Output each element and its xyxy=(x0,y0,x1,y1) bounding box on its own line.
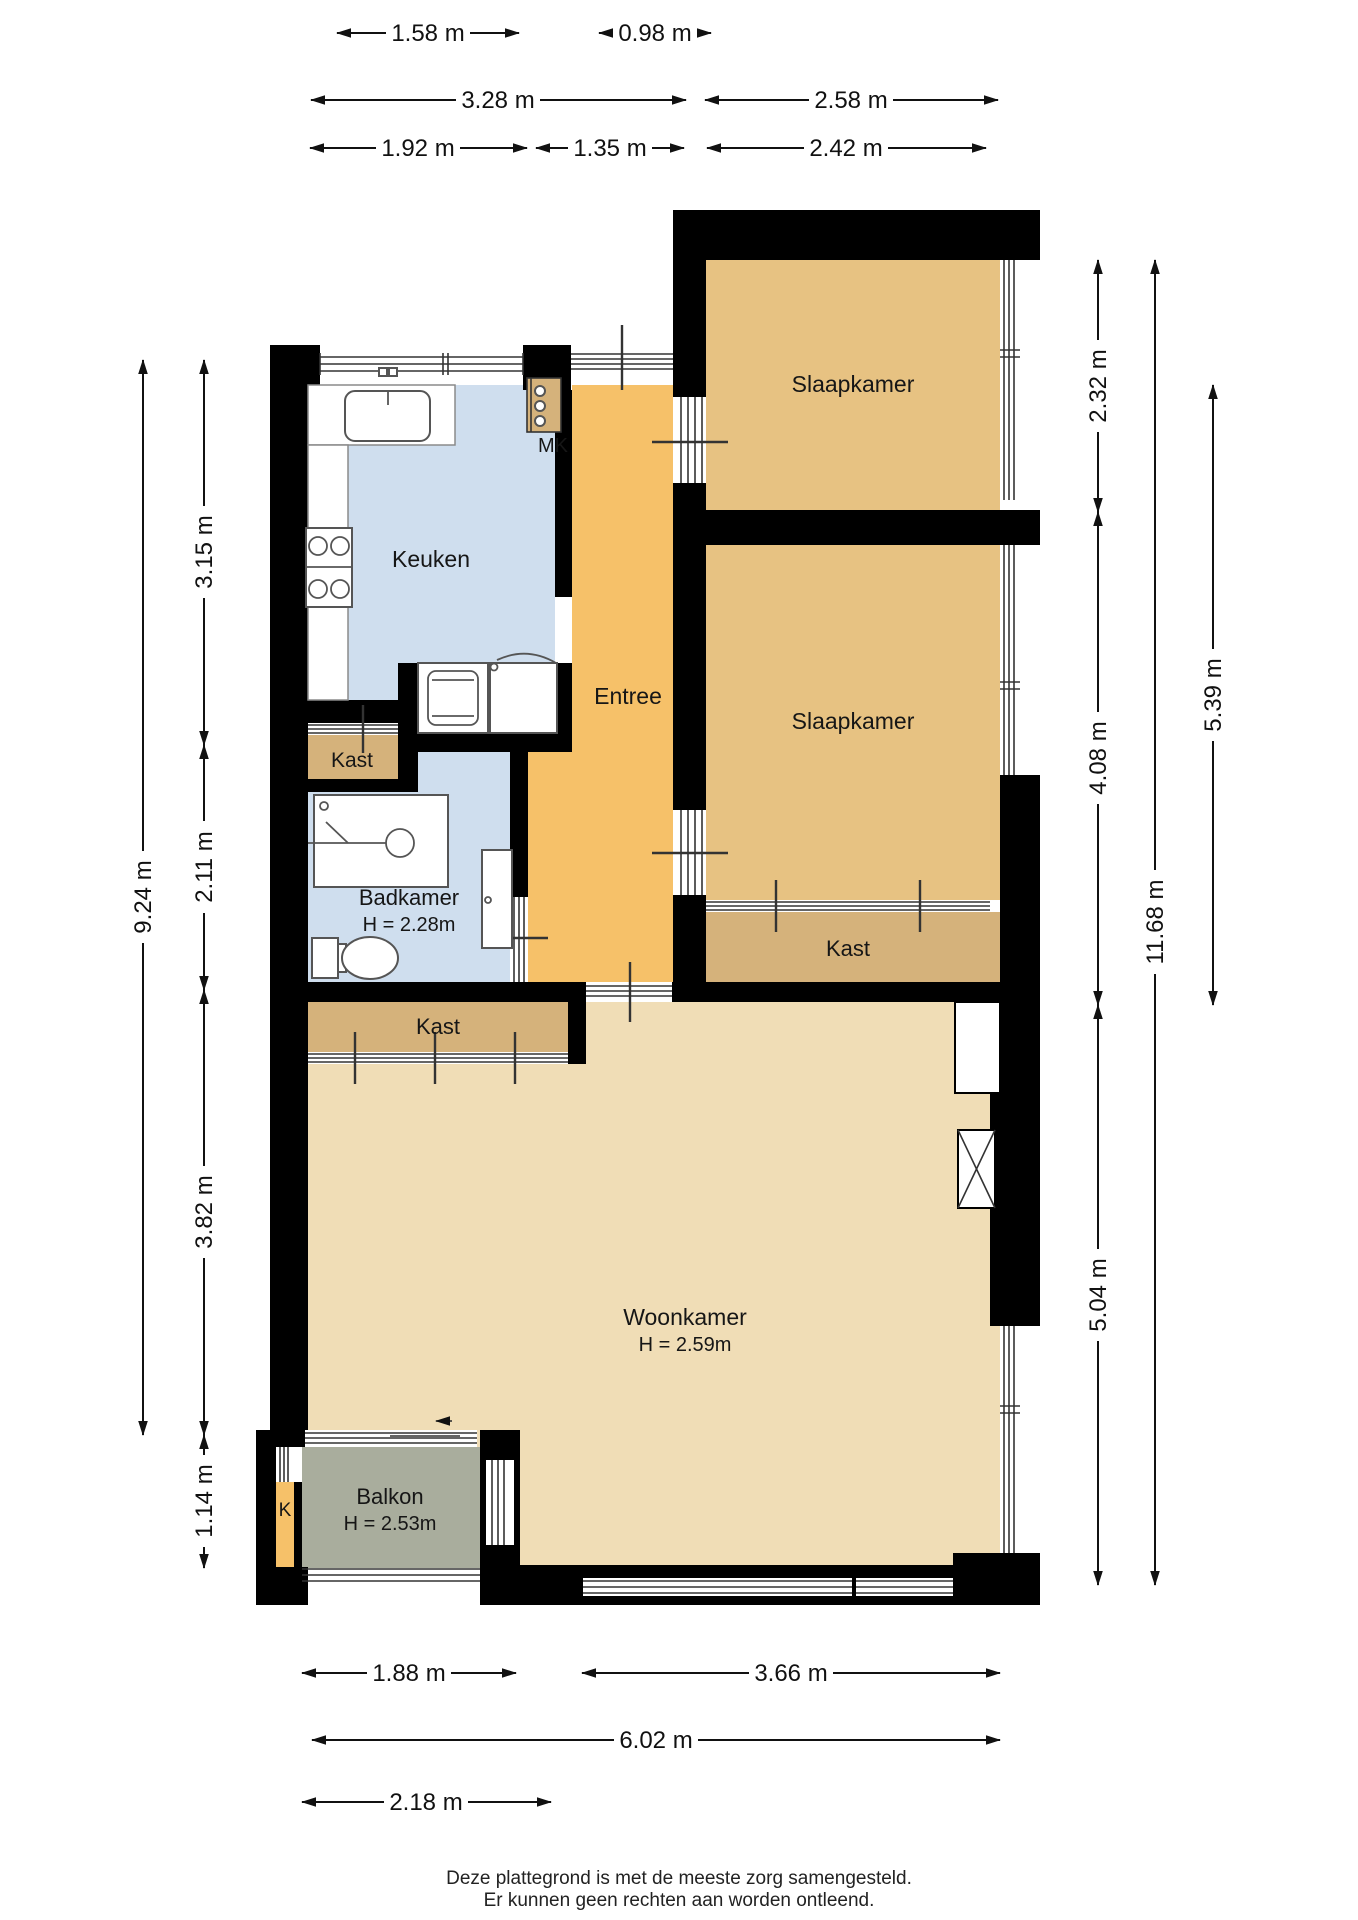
shower-icon xyxy=(308,795,448,887)
svg-text:2.58 m: 2.58 m xyxy=(814,87,887,114)
label-badkamer-height: H = 2.28m xyxy=(363,914,456,936)
window-woonkamer-bottom xyxy=(583,1578,953,1596)
label-keuken: Keuken xyxy=(392,546,470,572)
svg-text:3.28 m: 3.28 m xyxy=(461,87,534,114)
label-meterkast: MK xyxy=(538,435,569,457)
wall-niche xyxy=(955,1002,1000,1093)
stove-icon xyxy=(306,528,352,607)
svg-text:11.68 m: 11.68 m xyxy=(1142,880,1169,965)
label-kast-woonkamer: Kast xyxy=(416,1014,460,1039)
dimension-left-315: 3.15 m xyxy=(190,360,218,745)
room-entree-lower xyxy=(528,752,572,982)
svg-text:2.42 m: 2.42 m xyxy=(809,135,882,162)
wall-kast-keuken-bottom xyxy=(308,779,398,792)
window-slaapkamer-1-right xyxy=(1000,260,1020,500)
wall-entree-right-a xyxy=(673,210,706,397)
svg-text:2.18 m: 2.18 m xyxy=(389,1789,462,1816)
dimension-bottom-218: 2.18 m xyxy=(302,1788,551,1816)
dimension-top-258: 2.58 m xyxy=(705,86,998,114)
wall-balkon-corner-left xyxy=(256,1567,308,1605)
dimension-right-1168: 11.68 m xyxy=(1141,260,1169,1585)
washer-icon xyxy=(418,663,488,733)
dimension-top-242: 2.42 m xyxy=(707,134,986,162)
wall-kast-keuken-right xyxy=(398,663,418,792)
footer-line-1: Deze plattegrond is met de meeste zorg s… xyxy=(446,1868,912,1889)
dimension-right-232: 2.32 m xyxy=(1084,260,1112,512)
wall-right-a xyxy=(1000,775,1040,1005)
svg-text:1.92 m: 1.92 m xyxy=(381,135,454,162)
svg-text:1.88 m: 1.88 m xyxy=(372,1660,445,1687)
label-badkamer: Badkamer xyxy=(359,885,459,910)
svg-text:2.32 m: 2.32 m xyxy=(1085,349,1112,422)
window-woonkamer-right xyxy=(1000,1326,1020,1553)
label-balkon-height: H = 2.53m xyxy=(344,1513,437,1535)
wall-kast-keuken-top xyxy=(308,700,398,723)
dimension-right-408: 4.08 m xyxy=(1084,512,1112,1005)
svg-text:5.04 m: 5.04 m xyxy=(1085,1258,1112,1331)
dimension-top-192: 1.92 m xyxy=(310,134,527,162)
label-koof: K xyxy=(279,1500,292,1521)
svg-text:1.58 m: 1.58 m xyxy=(391,20,464,47)
label-woonkamer-height: H = 2.59m xyxy=(639,1334,732,1356)
badkamer-door-leaf xyxy=(482,850,512,948)
label-balkon: Balkon xyxy=(356,1484,423,1509)
meter-cabinet-icon xyxy=(527,378,561,432)
wall-left xyxy=(270,345,308,1430)
svg-text:3.66 m: 3.66 m xyxy=(754,1660,827,1687)
svg-text:6.02 m: 6.02 m xyxy=(619,1727,692,1754)
wall-badkamer-bottom xyxy=(270,982,586,1002)
toilet-icon xyxy=(312,937,398,979)
dimension-bottom-366: 3.66 m xyxy=(582,1659,1000,1687)
dimension-top-098: 0.98 m xyxy=(599,19,711,47)
window-koof xyxy=(276,1447,294,1482)
label-entree: Entree xyxy=(594,683,662,709)
dimension-right-539: 5.39 m xyxy=(1199,385,1227,1005)
wall-keuken-bottom xyxy=(398,733,572,752)
floorplan-page: Slaapkamer Slaapkamer Entree Keuken Badk… xyxy=(0,0,1358,1920)
svg-text:9.24 m: 9.24 m xyxy=(130,860,157,933)
shaft-niche xyxy=(958,1130,995,1208)
wall-kast-woonkamer-right xyxy=(568,1002,586,1064)
dimension-top-135: 1.35 m xyxy=(536,134,684,162)
footer-disclaimer: Deze plattegrond is met de meeste zorg s… xyxy=(446,1868,912,1911)
label-slaapkamer-2: Slaapkamer xyxy=(792,708,915,734)
svg-text:5.39 m: 5.39 m xyxy=(1200,658,1227,731)
kitchen-door xyxy=(490,654,557,733)
svg-text:3.82 m: 3.82 m xyxy=(191,1175,218,1248)
dimension-left-114: 1.14 m xyxy=(190,1435,218,1568)
window-slaapkamer-2-right xyxy=(1000,545,1020,775)
dimension-left-924: 9.24 m xyxy=(129,360,157,1435)
front-door-opening xyxy=(571,325,673,390)
wall-top-right xyxy=(673,210,1040,260)
floorplan-canvas: Slaapkamer Slaapkamer Entree Keuken Badk… xyxy=(0,0,1358,1920)
wall-top-left xyxy=(270,345,320,385)
wall-balkon-top-stub xyxy=(256,1430,305,1447)
wall-kast-bottom xyxy=(672,982,1040,1002)
dimension-top-158: 1.58 m xyxy=(337,19,519,47)
room-badkamer-upper xyxy=(418,752,510,792)
svg-text:0.98 m: 0.98 m xyxy=(618,20,691,47)
window-balkon-side xyxy=(486,1460,514,1545)
window-keuken-top xyxy=(320,345,523,385)
label-kast-keuken: Kast xyxy=(331,749,373,772)
dimension-top-328: 3.28 m xyxy=(311,86,686,114)
dimension-bottom-602: 6.02 m xyxy=(312,1726,1000,1754)
svg-text:1.35 m: 1.35 m xyxy=(573,135,646,162)
dimension-left-382: 3.82 m xyxy=(190,990,218,1435)
wall-koof-divider xyxy=(294,1482,302,1568)
dimension-right-504: 5.04 m xyxy=(1084,1005,1112,1585)
label-slaapkamer-1: Slaapkamer xyxy=(792,371,915,397)
footer-line-2: Er kunnen geen rechten aan worden ontlee… xyxy=(484,1890,875,1911)
svg-text:3.15 m: 3.15 m xyxy=(191,515,218,588)
svg-text:2.11 m: 2.11 m xyxy=(191,831,218,903)
balkon-railing xyxy=(302,1569,480,1581)
dimension-left-211: 2.11 m xyxy=(190,745,218,990)
svg-text:1.14 m: 1.14 m xyxy=(191,1464,218,1537)
wall-slaapkamer-divider xyxy=(673,510,1040,545)
svg-text:4.08 m: 4.08 m xyxy=(1085,721,1112,794)
label-woonkamer: Woonkamer xyxy=(623,1304,747,1330)
label-kast-slaapkamer: Kast xyxy=(826,936,870,961)
dimension-bottom-188: 1.88 m xyxy=(302,1659,516,1687)
